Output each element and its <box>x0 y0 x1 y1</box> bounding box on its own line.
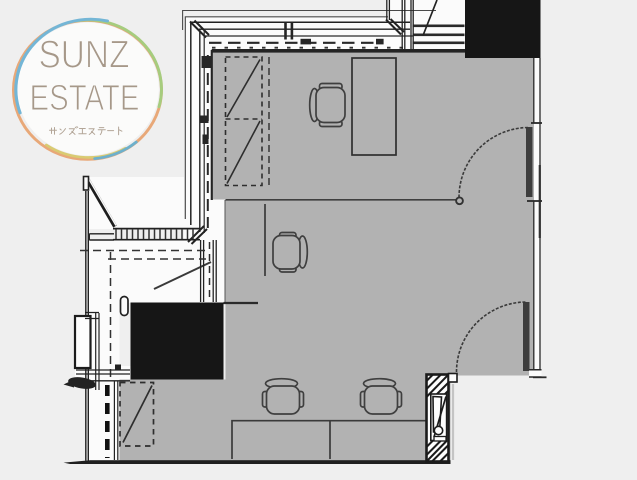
svg-text:SUNZ: SUNZ <box>39 34 130 77</box>
svg-text:ESTATE: ESTATE <box>30 77 140 118</box>
